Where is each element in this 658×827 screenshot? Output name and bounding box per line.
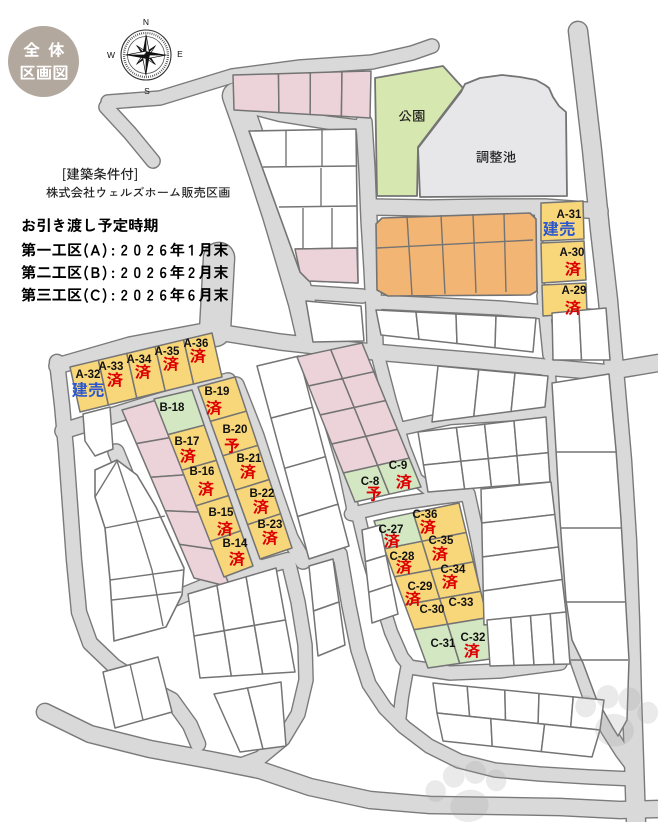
svg-text:C-31: C-31 xyxy=(431,638,457,650)
svg-text:W: W xyxy=(107,50,115,60)
svg-text:B-22: B-22 xyxy=(250,488,275,500)
svg-text:A-34: A-34 xyxy=(127,354,153,366)
svg-text:B-23: B-23 xyxy=(258,519,283,531)
svg-text:C-34: C-34 xyxy=(441,564,467,576)
svg-text:B-21: B-21 xyxy=(237,453,263,465)
svg-text:B-16: B-16 xyxy=(190,466,215,478)
svg-text:C-32: C-32 xyxy=(461,632,486,644)
svg-text:S: S xyxy=(144,86,150,96)
svg-text:C-33: C-33 xyxy=(449,597,474,609)
svg-text:A-35: A-35 xyxy=(155,346,181,358)
svg-text:A-36: A-36 xyxy=(184,338,209,350)
svg-text:C-35: C-35 xyxy=(429,535,455,547)
svg-text:A-31: A-31 xyxy=(557,209,583,221)
svg-text:B-18: B-18 xyxy=(160,402,186,414)
svg-text:A-32: A-32 xyxy=(76,369,101,381)
svg-text:A-33: A-33 xyxy=(99,361,124,373)
svg-text:C-36: C-36 xyxy=(413,509,438,521)
svg-text:B-19: B-19 xyxy=(205,386,230,398)
svg-text:B-17: B-17 xyxy=(175,436,200,448)
svg-text:C-29: C-29 xyxy=(408,581,433,593)
svg-text:C-30: C-30 xyxy=(420,604,445,616)
svg-text:B-20: B-20 xyxy=(223,424,248,436)
svg-text:A-29: A-29 xyxy=(562,285,587,297)
svg-text:C-27: C-27 xyxy=(379,524,404,536)
svg-text:C-9: C-9 xyxy=(389,460,408,472)
svg-text:B-14: B-14 xyxy=(223,538,249,550)
svg-text:B-15: B-15 xyxy=(209,507,235,519)
svg-text:E: E xyxy=(177,49,183,59)
svg-text:C-8: C-8 xyxy=(361,476,380,488)
svg-text:A-30: A-30 xyxy=(560,247,585,259)
svg-text:N: N xyxy=(143,17,149,27)
